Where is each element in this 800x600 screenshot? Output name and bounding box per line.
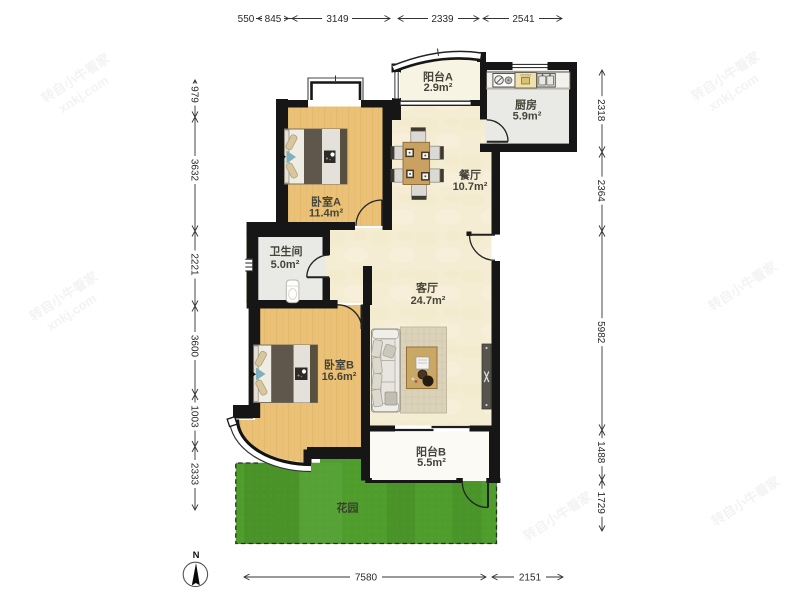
svg-text:2333: 2333 bbox=[189, 463, 200, 486]
svg-text:卫生间: 卫生间 bbox=[270, 244, 303, 258]
svg-text:7580: 7580 bbox=[355, 573, 378, 584]
svg-text:客厅: 客厅 bbox=[415, 281, 438, 295]
svg-text:5.0m²: 5.0m² bbox=[271, 259, 300, 271]
svg-text:3149: 3149 bbox=[326, 14, 349, 25]
svg-text:845: 845 bbox=[265, 14, 282, 25]
svg-text:5982: 5982 bbox=[595, 321, 606, 344]
svg-text:5.5m²: 5.5m² bbox=[417, 457, 446, 469]
svg-text:16.6m²: 16.6m² bbox=[322, 371, 357, 383]
svg-text:3600: 3600 bbox=[189, 335, 200, 358]
svg-text:24.7m²: 24.7m² bbox=[411, 295, 446, 307]
svg-text:1488: 1488 bbox=[595, 441, 606, 464]
svg-text:5.9m²: 5.9m² bbox=[513, 111, 542, 123]
svg-text:10.7m²: 10.7m² bbox=[453, 181, 488, 193]
svg-text:OOOO: OOOO bbox=[520, 74, 531, 78]
svg-text:2.9m²: 2.9m² bbox=[424, 82, 453, 94]
svg-text:550: 550 bbox=[238, 14, 255, 25]
svg-text:厨房: 厨房 bbox=[515, 98, 537, 112]
svg-text:2151: 2151 bbox=[519, 573, 542, 584]
svg-text:餐厅: 餐厅 bbox=[458, 168, 481, 182]
svg-text:2221: 2221 bbox=[189, 253, 200, 276]
svg-text:979: 979 bbox=[189, 86, 200, 103]
svg-text:2318: 2318 bbox=[595, 99, 606, 122]
svg-text:1729: 1729 bbox=[595, 492, 606, 515]
svg-text:N: N bbox=[193, 550, 200, 561]
svg-text:2364: 2364 bbox=[595, 180, 606, 203]
svg-text:1003: 1003 bbox=[189, 405, 200, 428]
svg-text:11.4m²: 11.4m² bbox=[309, 208, 344, 220]
svg-text:卧室A: 卧室A bbox=[311, 195, 341, 209]
svg-text:卧室B: 卧室B bbox=[324, 358, 354, 372]
svg-text:2541: 2541 bbox=[512, 14, 535, 25]
svg-text:花园: 花园 bbox=[337, 501, 359, 515]
svg-text:2339: 2339 bbox=[431, 14, 454, 25]
svg-text:3632: 3632 bbox=[189, 159, 200, 182]
